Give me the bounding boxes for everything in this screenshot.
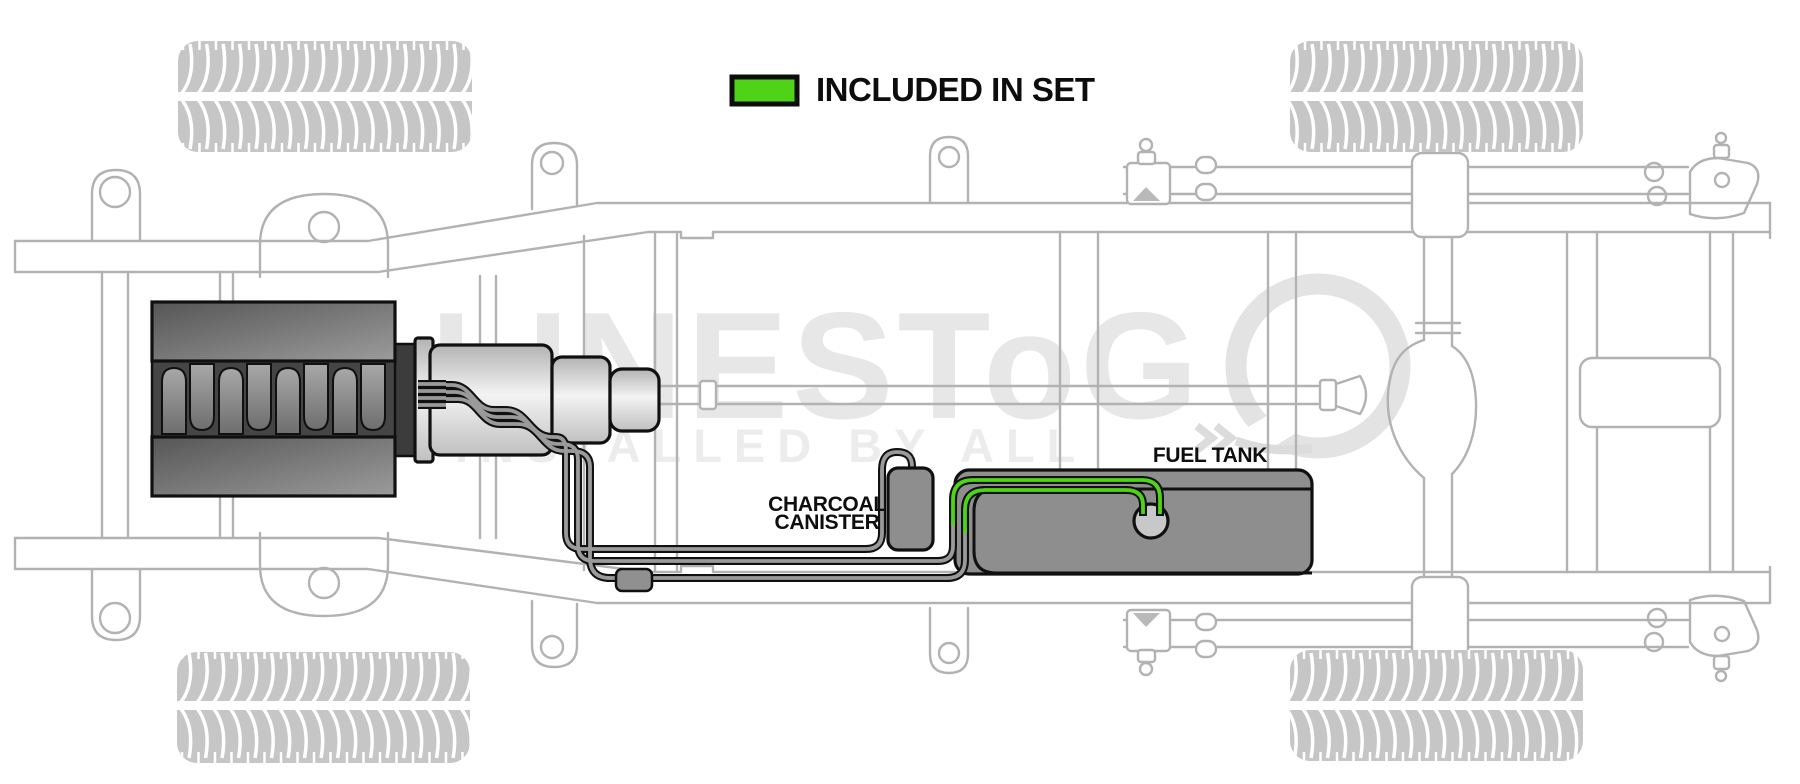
grease-fitting-icon <box>1140 139 1152 151</box>
tire-rear-bottom <box>1290 650 1583 761</box>
transmission-mid <box>552 357 610 443</box>
frame-rail-top-outer <box>15 203 1770 241</box>
frame-brackets-top <box>92 137 968 277</box>
bracket-hole-icon <box>541 152 563 174</box>
spring-shackle <box>1690 158 1758 218</box>
frame-rail-top-inner <box>15 232 1770 272</box>
bracket-hole-icon <box>309 212 339 242</box>
axle-collar <box>1416 323 1460 333</box>
tire-front-right <box>177 652 470 763</box>
spring-clip-icon <box>1196 157 1216 173</box>
bracket-tab-icon <box>92 170 140 241</box>
diagram-stage: LINESToG INSTALLED BY ALL <box>0 0 1800 784</box>
valve-cover-top <box>152 302 395 361</box>
fuel-tank <box>955 470 1312 574</box>
legend-label: INCLUDED IN SET <box>816 71 1095 108</box>
spring-eye-icon <box>1645 163 1663 181</box>
grease-fitting-icon <box>1714 145 1729 158</box>
valve-cover-bottom <box>152 437 395 496</box>
bracket-hole-icon <box>100 177 130 207</box>
diff-yoke-icon <box>1320 380 1336 410</box>
tire-rear-top <box>1290 41 1583 152</box>
intake-manifold-band <box>152 361 395 437</box>
grease-fitting-icon <box>1716 133 1726 143</box>
fuel-tank-label: FUEL TANK <box>1153 444 1267 467</box>
line-clamp <box>616 569 652 591</box>
fuel-rail-stubs <box>418 384 446 405</box>
legend-swatch <box>732 77 797 104</box>
charcoal-canister-label-line2: CANISTER <box>775 511 880 534</box>
rear-crossmember-plate <box>1580 358 1720 427</box>
charcoal-canister <box>888 468 933 550</box>
tire-front-left <box>178 41 472 152</box>
grease-fitting-icon <box>1138 152 1155 164</box>
shackle-hole-icon <box>1715 173 1729 187</box>
chassis-fuel-line-diagram: LINESToG INSTALLED BY ALL <box>0 0 1800 784</box>
bracket-hole-icon <box>939 147 959 167</box>
u-bolt-plate <box>1412 153 1468 237</box>
frame-rail-top-ends <box>15 203 1770 272</box>
bracket-arch-icon <box>260 194 388 277</box>
legend: INCLUDED IN SET <box>732 71 1095 108</box>
transmission-tailshaft <box>610 369 659 431</box>
u-joint-icon <box>700 381 716 409</box>
spring-clip-icon <box>1196 184 1216 200</box>
diff-yoke-fork <box>1336 376 1366 414</box>
